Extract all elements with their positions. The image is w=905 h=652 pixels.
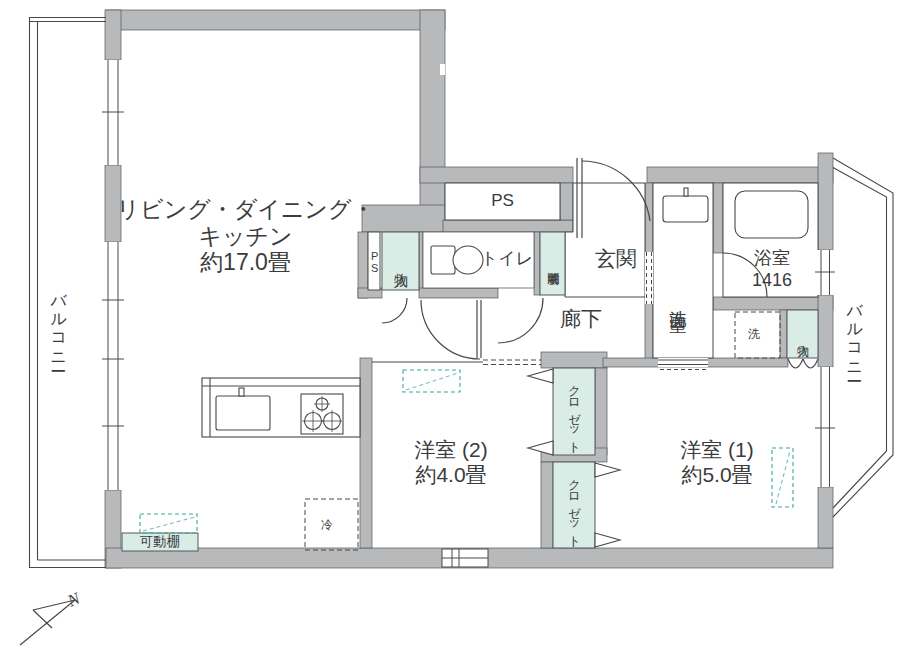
refrigerator-box	[305, 499, 358, 550]
toilet-door	[498, 298, 543, 343]
window-right-western1	[815, 367, 835, 487]
washroom-sliding-door	[645, 252, 653, 304]
window-right-bathroom	[815, 250, 835, 295]
compass-north-letter: N	[64, 588, 85, 611]
storage-bath-bifold-door	[788, 359, 818, 368]
balcony-right-outline	[833, 158, 893, 517]
ac-unit-western2	[403, 370, 460, 392]
window-left-1	[102, 60, 124, 165]
window-bottom-wall	[442, 549, 488, 567]
windows	[102, 60, 835, 567]
western2-sliding-opening	[483, 360, 541, 365]
pipe-space-large-box	[445, 183, 560, 220]
western1-sliding-door	[658, 358, 708, 370]
storage-hall-box	[382, 232, 419, 290]
window-left-2	[102, 242, 124, 490]
ac-unit-western1	[772, 448, 793, 507]
washer-box	[735, 312, 780, 358]
storage-hall-door	[382, 298, 407, 323]
pipe-space-small-box	[368, 232, 380, 290]
closet-bottom-box	[553, 462, 595, 548]
floor-plan: N リビング・ダイニング・ キッチン 約17.0畳 PS PS 物入 トイレ 玄…	[0, 0, 905, 652]
kitchen-counter	[202, 378, 360, 437]
ac-unit-ldk	[140, 514, 197, 533]
movable-shelf-box	[122, 533, 198, 551]
storage-bath-box	[787, 310, 818, 358]
ldk-hall-door	[421, 300, 481, 359]
balcony-left-outline	[30, 17, 107, 568]
floor-plan-canvas: N	[0, 0, 905, 652]
toilet-icon	[431, 246, 483, 274]
entrance-storage-box	[540, 232, 565, 295]
stove-icon	[301, 394, 343, 434]
closet-top-box	[553, 368, 595, 455]
compass-north-icon: N	[20, 588, 84, 645]
bathtub-icon	[735, 191, 808, 238]
